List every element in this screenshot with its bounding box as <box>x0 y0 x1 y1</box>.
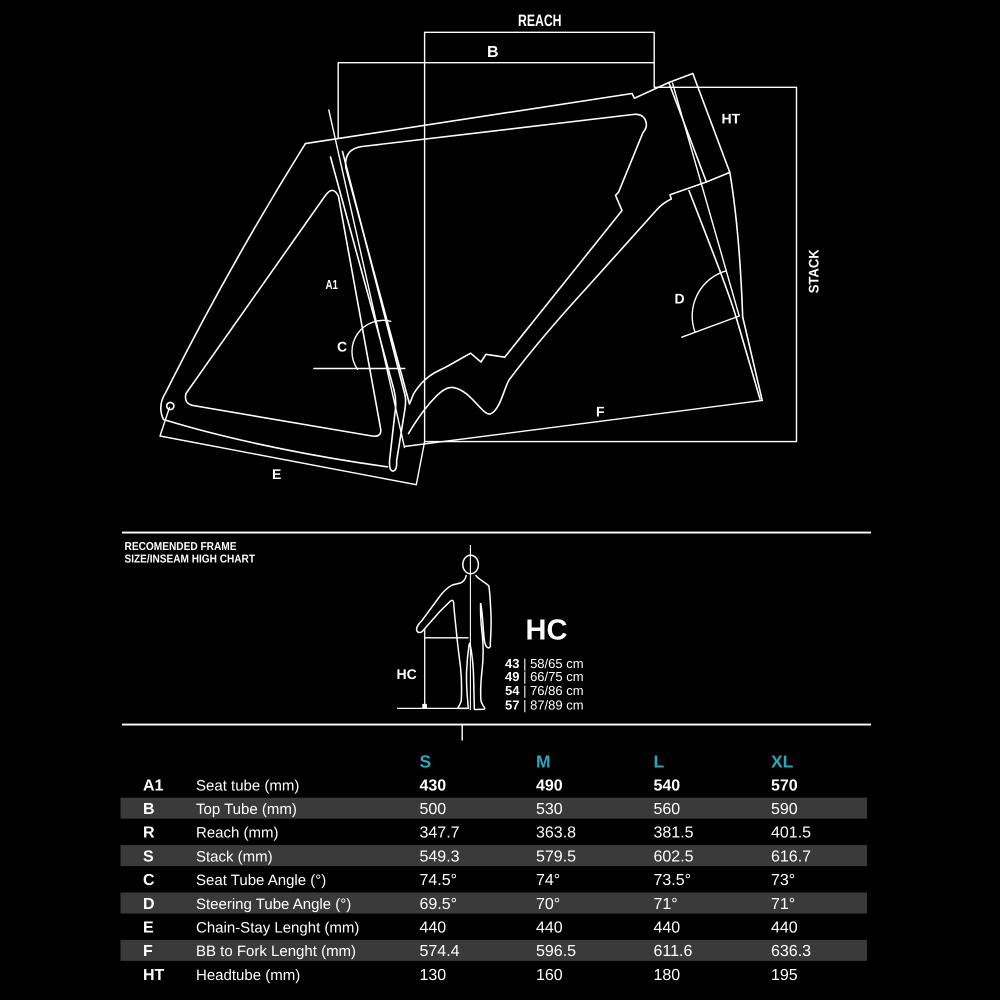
svg-text:F: F <box>143 943 153 960</box>
svg-text:B: B <box>487 44 499 61</box>
svg-text:RECOMENDED FRAME: RECOMENDED FRAME <box>125 541 237 553</box>
svg-text:590: 590 <box>771 801 798 818</box>
svg-text:Headtube (mm): Headtube (mm) <box>196 967 300 984</box>
svg-text:74°: 74° <box>536 872 560 889</box>
svg-text:363.8: 363.8 <box>536 825 576 842</box>
svg-text:71°: 71° <box>771 896 795 913</box>
svg-text:401.5: 401.5 <box>771 825 811 842</box>
svg-text:430: 430 <box>420 777 447 794</box>
svg-text:73.5°: 73.5° <box>654 872 692 889</box>
svg-text:549.3: 549.3 <box>420 848 460 865</box>
svg-text:130: 130 <box>420 967 447 984</box>
svg-text:E: E <box>143 920 154 937</box>
svg-text:71°: 71° <box>654 896 678 913</box>
svg-text:490: 490 <box>536 777 563 794</box>
svg-text:HT: HT <box>722 111 741 127</box>
svg-text:440: 440 <box>420 920 447 937</box>
svg-text:SIZE/INSEAM HIGH CHART: SIZE/INSEAM HIGH CHART <box>125 554 256 566</box>
svg-text:Reach (mm): Reach (mm) <box>196 825 279 842</box>
svg-text:Seat tube (mm): Seat tube (mm) <box>196 777 299 794</box>
svg-text:574.4: 574.4 <box>420 943 460 960</box>
svg-text:M: M <box>536 751 551 771</box>
svg-text:570: 570 <box>771 777 798 794</box>
svg-text:560: 560 <box>654 801 681 818</box>
svg-text:57 | 87/89 cm: 57 | 87/89 cm <box>505 697 584 712</box>
svg-text:74.5°: 74.5° <box>420 872 458 889</box>
svg-text:440: 440 <box>771 920 798 937</box>
svg-text:440: 440 <box>536 920 563 937</box>
svg-text:160: 160 <box>536 967 563 984</box>
svg-text:Stack (mm): Stack (mm) <box>196 848 273 865</box>
svg-text:R: R <box>143 825 155 842</box>
svg-text:S: S <box>143 848 154 865</box>
svg-text:E: E <box>272 466 281 482</box>
svg-text:D: D <box>675 291 685 307</box>
svg-text:HC: HC <box>397 666 417 682</box>
svg-text:381.5: 381.5 <box>654 825 694 842</box>
svg-text:440: 440 <box>654 920 681 937</box>
svg-text:REACH: REACH <box>518 12 562 30</box>
svg-text:180: 180 <box>654 967 681 984</box>
svg-text:602.5: 602.5 <box>654 848 694 865</box>
svg-text:S: S <box>420 751 432 771</box>
svg-text:500: 500 <box>420 801 447 818</box>
svg-text:579.5: 579.5 <box>536 848 576 865</box>
svg-text:540: 540 <box>654 777 681 794</box>
svg-text:BB to Fork Lenght (mm): BB to Fork Lenght (mm) <box>196 943 356 960</box>
svg-text:54 | 76/86 cm: 54 | 76/86 cm <box>505 683 584 698</box>
svg-text:L: L <box>654 751 665 771</box>
svg-text:Steering Tube Angle (°): Steering Tube Angle (°) <box>196 896 351 913</box>
svg-text:616.7: 616.7 <box>771 848 811 865</box>
svg-text:D: D <box>143 896 155 913</box>
svg-text:Seat Tube Angle (°): Seat Tube Angle (°) <box>196 872 326 889</box>
svg-text:A1: A1 <box>143 777 164 794</box>
svg-text:195: 195 <box>771 967 798 984</box>
svg-text:HC: HC <box>526 614 568 646</box>
svg-text:49 | 66/75 cm: 49 | 66/75 cm <box>505 669 584 684</box>
svg-text:B: B <box>143 801 155 818</box>
svg-text:596.5: 596.5 <box>536 943 576 960</box>
svg-text:Top Tube (mm): Top Tube (mm) <box>196 801 297 818</box>
svg-text:70°: 70° <box>536 896 560 913</box>
svg-text:HT: HT <box>143 967 165 984</box>
svg-text:611.6: 611.6 <box>654 943 693 960</box>
svg-text:73°: 73° <box>771 872 795 889</box>
svg-text:A1: A1 <box>326 277 339 292</box>
svg-text:636.3: 636.3 <box>771 943 811 960</box>
svg-text:347.7: 347.7 <box>420 825 460 842</box>
svg-text:C: C <box>143 872 155 889</box>
svg-text:Chain-Stay Lenght (mm): Chain-Stay Lenght (mm) <box>196 920 359 937</box>
svg-text:XL: XL <box>771 751 794 771</box>
svg-text:69.5°: 69.5° <box>420 896 458 913</box>
svg-text:530: 530 <box>536 801 563 818</box>
svg-text:F: F <box>596 404 605 420</box>
svg-text:STACK: STACK <box>806 249 822 293</box>
svg-text:C: C <box>337 339 347 355</box>
